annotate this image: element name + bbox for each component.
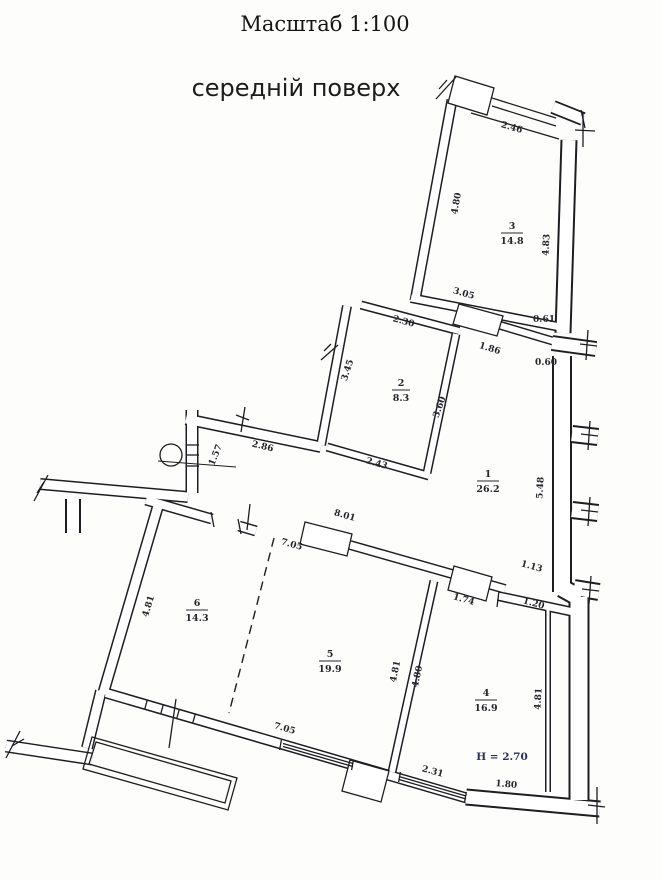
wall-break-mark <box>588 787 605 824</box>
floor-plan-page: Масштаб 1:100 середній поверх <box>0 0 661 880</box>
dimension-label: 2.43 <box>365 456 389 472</box>
svg-text:16.9: 16.9 <box>474 703 498 714</box>
svg-text:14.3: 14.3 <box>185 613 208 624</box>
svg-text:8.3: 8.3 <box>393 393 410 404</box>
dimension-label: 3.05 <box>452 286 476 302</box>
dimension-label: 4.83 <box>541 234 552 256</box>
dimension-label: 7.05 <box>280 537 304 553</box>
dimension-label: 3.60 <box>432 395 449 419</box>
dimension-label: 4.81 <box>533 688 544 710</box>
room-label-5: 5 19.9 <box>318 649 342 675</box>
vestibule-pier <box>453 304 503 336</box>
room-label-1: 1 26.2 <box>476 469 499 495</box>
dashed-partition-line <box>229 538 274 713</box>
dimension-label: 0.61 <box>533 315 555 325</box>
dimension-label: 1.86 <box>478 341 502 357</box>
wall-piers <box>300 76 503 802</box>
height-note: H = 2.70 <box>476 751 528 763</box>
dimension-label: 3.45 <box>340 358 356 382</box>
corridor-pier <box>300 522 352 556</box>
dimension-label: 1.13 <box>520 559 544 574</box>
room-label-2: 2 8.3 <box>392 378 410 404</box>
dimension-label: 1.20 <box>522 596 546 611</box>
svg-text:2: 2 <box>398 378 405 389</box>
dimension-label: 2.31 <box>421 764 445 779</box>
dimension-label: 2.46 <box>500 120 524 136</box>
svg-text:19.9: 19.9 <box>318 664 342 675</box>
dimension-label: 8.01 <box>333 508 357 524</box>
dimension-label: 1.57 <box>207 443 224 467</box>
balcony <box>83 737 237 810</box>
svg-text:3: 3 <box>509 221 516 232</box>
svg-text:1: 1 <box>485 469 492 480</box>
dimension-label: 7.05 <box>273 721 297 737</box>
room-label-4: 4 16.9 <box>474 688 498 714</box>
dimension-label: 1.80 <box>495 779 518 791</box>
walls-hollow <box>6 100 600 809</box>
room-label-6: 6 14.3 <box>185 598 208 624</box>
svg-text:4: 4 <box>483 688 490 699</box>
window-symbols <box>145 98 585 802</box>
svg-text:14.8: 14.8 <box>500 236 524 247</box>
svg-text:26.2: 26.2 <box>476 484 499 495</box>
dimension-label: 0.60 <box>535 358 557 368</box>
dimension-label: 5.48 <box>535 477 546 499</box>
floor-plan-drawing: 2.46 4.80 4.83 3.05 0.61 2.30 1.86 0.60 … <box>0 0 661 880</box>
facade-pier <box>342 760 389 802</box>
dimension-label: 4.81 <box>141 594 157 618</box>
svg-text:6: 6 <box>194 598 201 609</box>
dimension-label: 4.81 <box>389 660 403 684</box>
dimension-label: 4.80 <box>450 192 464 215</box>
room-label-3: 3 14.8 <box>500 221 524 247</box>
svg-text:5: 5 <box>327 649 334 660</box>
